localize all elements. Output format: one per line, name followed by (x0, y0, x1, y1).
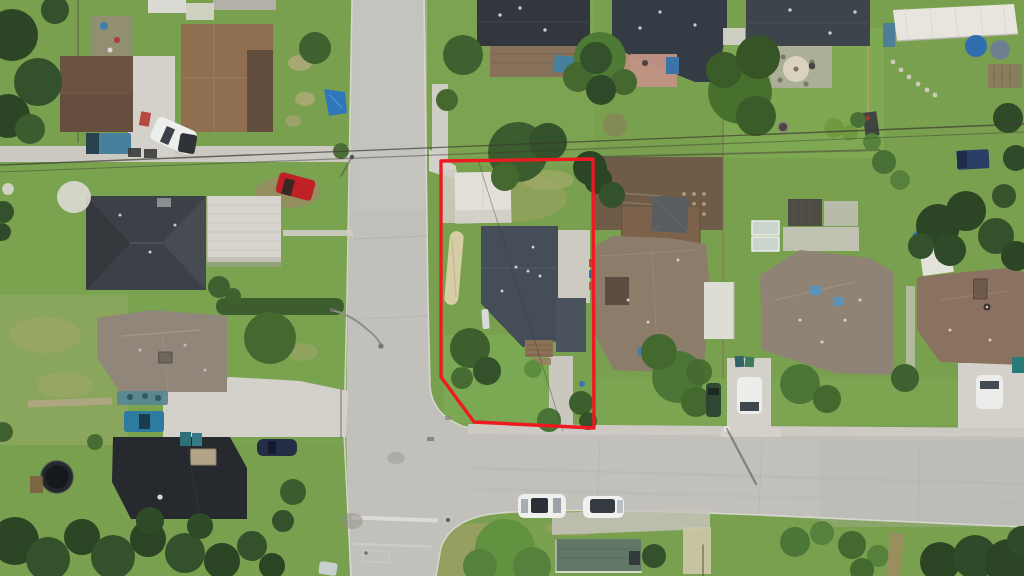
bush (87, 434, 103, 450)
car-sunroof (531, 498, 548, 513)
spruce (736, 96, 776, 136)
chimney (159, 352, 172, 363)
pad-tan (683, 527, 711, 574)
garden-bush (810, 521, 834, 545)
deck-box (30, 476, 43, 493)
skylight (810, 286, 821, 295)
gray-umbrella (990, 40, 1010, 60)
tree (244, 312, 296, 364)
driveway-lot-inner (441, 170, 457, 223)
house-dark-roof (112, 437, 247, 519)
car-rear-glass (521, 499, 528, 513)
white-tarp (57, 181, 91, 213)
tree (580, 42, 612, 74)
conifer (187, 513, 213, 539)
car-green-glass (708, 388, 719, 395)
car-windshield (553, 498, 561, 513)
car-windshield (740, 402, 759, 411)
shed-bin (629, 551, 640, 565)
skylight (833, 297, 844, 306)
roof-shade (60, 94, 133, 132)
conifer (165, 533, 205, 573)
blue-tarp (666, 57, 679, 74)
truck-cab (139, 414, 150, 429)
lot-bush (569, 391, 593, 415)
eave-shadow (207, 262, 281, 267)
car-roof-glass (590, 499, 615, 513)
tree (908, 233, 934, 259)
roof-vent (157, 494, 162, 499)
house-top-a-roof (477, 0, 590, 46)
tree (15, 114, 45, 144)
tree-canopy (686, 359, 712, 385)
parked-dark (144, 149, 157, 158)
roof-fragment (213, 0, 276, 10)
chimney-tan (191, 449, 216, 465)
umbrella-pole (794, 67, 799, 72)
trailer-roof (148, 0, 186, 13)
suv-white (976, 375, 1003, 409)
white-disc (2, 183, 14, 195)
house-taupe-roof (97, 310, 227, 392)
atv-detail (866, 116, 870, 120)
white-porch (186, 3, 214, 20)
tree (641, 334, 677, 370)
walkway-left (283, 230, 353, 236)
shed-teal-roof (556, 539, 641, 573)
hot-tub-inner (46, 466, 69, 489)
garden-bush (838, 531, 866, 559)
car-navy (257, 439, 297, 456)
garbage-bin (192, 433, 202, 446)
carport-white (704, 282, 734, 339)
suv-windshield (980, 381, 999, 389)
garden-bush (872, 150, 896, 174)
garden-bush (890, 170, 910, 190)
garbage-bin (1012, 357, 1024, 373)
patio-item-white (108, 48, 113, 53)
tree (891, 364, 919, 392)
garage-white-roof (207, 196, 281, 262)
garbage-bin (735, 356, 745, 368)
road-smudge (341, 513, 363, 529)
tree (736, 35, 780, 79)
conifer (136, 507, 164, 535)
dry-patch (9, 317, 81, 353)
truck-navy-cab (957, 151, 968, 169)
lot-bush (473, 357, 501, 385)
fire-pit (778, 122, 788, 132)
conifer (237, 531, 267, 561)
greenhouse (752, 221, 779, 235)
garden-bush (863, 133, 881, 151)
streetlight-head (378, 343, 383, 348)
dirt-patio (92, 16, 132, 58)
toy-blue (579, 381, 585, 387)
lot-bush (451, 367, 473, 389)
car-dark (177, 133, 197, 155)
hedge-shrub (992, 184, 1016, 208)
trailer-cab (86, 133, 99, 154)
featured-house-wing (556, 298, 586, 352)
garbage-bin (180, 432, 191, 446)
grill (809, 63, 815, 69)
bush (272, 510, 294, 532)
dead-tree (603, 113, 627, 137)
parked-dark (128, 148, 141, 157)
car-navy-glass (268, 441, 276, 454)
pergola-dark (788, 199, 822, 226)
grill (642, 60, 648, 66)
road-light-top (353, 0, 427, 210)
manhole (445, 416, 451, 420)
dry-shrub (285, 115, 301, 127)
chimney (974, 279, 987, 299)
bush (225, 288, 241, 304)
car-windshield (617, 500, 623, 513)
garden-bush (780, 527, 810, 557)
roof-inset (605, 277, 629, 305)
tree (946, 191, 986, 231)
patio (824, 201, 858, 226)
hedge-shrub (993, 103, 1023, 133)
roof-shadow (207, 257, 281, 262)
driveway-lot-side (556, 230, 590, 303)
neighbor3-roof (917, 268, 1024, 365)
pedestrian (364, 551, 368, 555)
aerial-photo-figure (0, 0, 1024, 576)
chimney (157, 198, 171, 207)
lot-bush (524, 360, 542, 378)
tree (813, 385, 841, 413)
pergola (988, 64, 1022, 88)
walkway-h12 (906, 286, 915, 368)
patio-item-blue (100, 22, 108, 30)
manhole (427, 437, 434, 441)
roof-dark-wing (247, 50, 273, 132)
tree (934, 234, 966, 266)
road-smudge (387, 452, 405, 464)
tree-over-lot (491, 163, 519, 191)
blue-umbrella (965, 35, 987, 57)
aerial-scene (0, 0, 1024, 576)
pedestrian (446, 518, 450, 522)
tree (436, 89, 458, 111)
bush (642, 544, 666, 568)
patio-item-red (114, 37, 120, 43)
dry-shrub (295, 92, 315, 106)
patio (783, 227, 859, 251)
blue-tarp (883, 23, 895, 47)
streetlight-base (330, 308, 334, 312)
tree (586, 75, 616, 105)
roof-vent-pipe (481, 309, 489, 329)
bush (280, 479, 306, 505)
dry-patch (37, 372, 93, 398)
satellite-dish-dot (986, 306, 988, 308)
garden-bush (824, 118, 844, 138)
tree (599, 182, 625, 208)
greenhouse (752, 237, 779, 251)
tree (443, 35, 483, 75)
tree (299, 32, 331, 64)
car-partial (318, 561, 338, 576)
garbage-bin (745, 357, 755, 368)
